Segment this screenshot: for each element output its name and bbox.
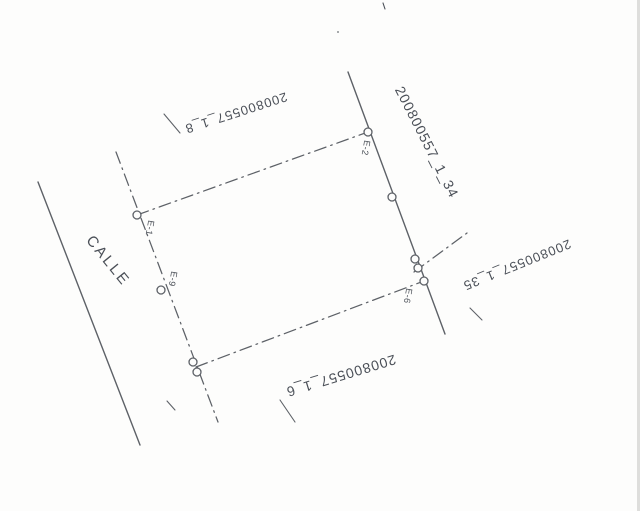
- parcel-edge-left: [116, 152, 218, 422]
- survey-point-cluster-2: [414, 264, 422, 272]
- scan-stray-dash: [167, 401, 175, 410]
- leader-parcel-bottom: [280, 400, 295, 422]
- survey-point-corner-2: [193, 368, 201, 376]
- survey-point-mid: [388, 193, 396, 201]
- survey-point-e1: [133, 211, 141, 219]
- survey-point-e2: [364, 128, 372, 136]
- survey-point-cluster-1: [411, 255, 419, 263]
- leader-parcel-mid-right: [470, 308, 482, 320]
- survey-point-corner-1: [189, 358, 197, 366]
- survey-plat-scan: CALLE 200800557_1_8 200800557_1_34 20080…: [0, 0, 640, 511]
- parcel-edge-top: [137, 132, 368, 215]
- leader-parcel-top: [164, 114, 180, 133]
- boundary-line-right: [348, 72, 445, 334]
- scan-speck-top: [383, 3, 385, 9]
- scan-speck-dot: [337, 31, 339, 33]
- survey-point-e6: [420, 277, 428, 285]
- survey-point-e9: [157, 286, 165, 294]
- street-line: [38, 182, 140, 445]
